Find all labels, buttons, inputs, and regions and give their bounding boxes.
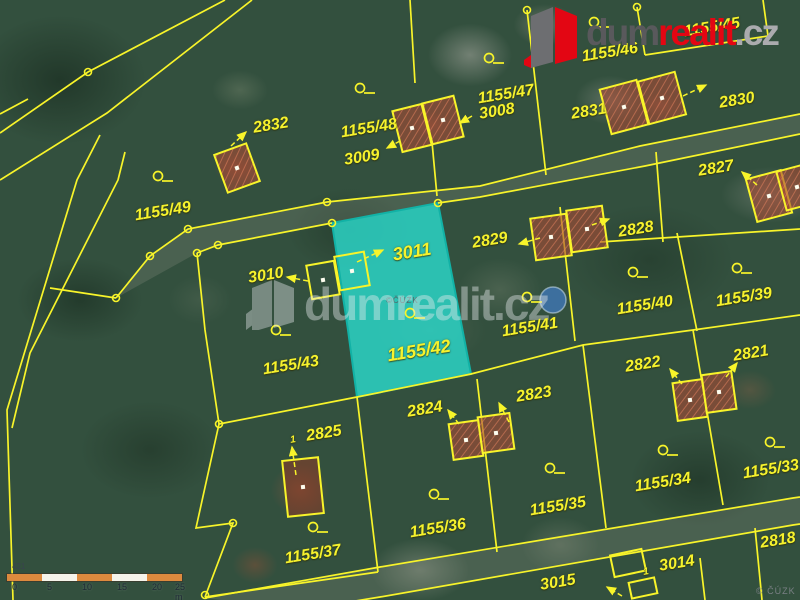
scalebar-segment xyxy=(112,574,147,581)
dumrealit-logo-icon xyxy=(522,4,580,72)
label-arrow xyxy=(287,277,308,281)
scalebar-ticks: 0510152025 m xyxy=(7,581,192,592)
building-outline xyxy=(478,413,515,453)
parcel-point-symbol xyxy=(733,264,753,274)
label-arrow xyxy=(607,587,622,596)
parcel-point-symbol xyxy=(546,464,566,474)
scalebar-segment xyxy=(42,574,77,581)
scalebar-tick-label: 5 xyxy=(47,582,52,592)
building-outline xyxy=(629,577,658,598)
label-arrow xyxy=(460,116,472,123)
parcel-point-symbol xyxy=(629,268,649,278)
scalebar-bar xyxy=(7,574,182,581)
scalebar-note: 421 xyxy=(12,562,25,571)
parcel-point-symbol xyxy=(309,523,329,533)
parcel-point-symbol xyxy=(485,54,505,64)
parcel-point-symbol xyxy=(154,172,174,182)
pool-layer xyxy=(540,287,566,313)
building-outline xyxy=(282,457,324,516)
scalebar-segment xyxy=(7,574,42,581)
cadastral-map[interactable]: dumrealit.cz ©ČÚZK © ČÚZK dumrealit.cz 2… xyxy=(0,0,800,600)
dumrealit-logo-text: dumrealit.cz xyxy=(586,4,778,62)
building-outline xyxy=(306,261,339,299)
label-arrow xyxy=(387,141,400,148)
parcel-point-symbol xyxy=(430,490,450,500)
parcel-point-symbol xyxy=(659,446,679,456)
parcel-point-symbol xyxy=(272,326,292,336)
building-outline xyxy=(702,371,737,413)
label-arrow xyxy=(448,410,459,424)
dumrealit-logo[interactable]: dumrealit.cz xyxy=(522,4,778,72)
scalebar-tick-label: 25 m xyxy=(175,582,192,600)
parcel-point-symbol xyxy=(766,438,786,448)
cuzk-copyright-center: ©ČÚZK xyxy=(386,296,419,305)
scalebar-tick-label: 0 xyxy=(12,582,17,592)
label-arrow xyxy=(670,369,682,384)
map-scalebar: 421 0510152025 m xyxy=(7,574,192,592)
building-outline xyxy=(214,143,260,192)
scalebar-tick-label: 15 xyxy=(117,582,127,592)
logo-text-cz: .cz xyxy=(735,12,778,53)
logo-text-dum: dum xyxy=(586,12,658,53)
scalebar-segment xyxy=(147,574,182,581)
cuzk-copyright-corner: © ČÚZK xyxy=(756,586,796,596)
building-outline xyxy=(566,206,607,253)
scalebar-tick-label: 20 xyxy=(152,582,162,592)
scalebar-segment xyxy=(77,574,112,581)
parcel-point-symbol xyxy=(356,84,376,94)
scalebar-tick-label: 10 xyxy=(82,582,92,592)
building-outline xyxy=(530,214,571,261)
label-arrow xyxy=(683,85,706,96)
logo-text-realit: realit xyxy=(658,12,734,53)
parcel-point-symbol xyxy=(523,293,543,303)
